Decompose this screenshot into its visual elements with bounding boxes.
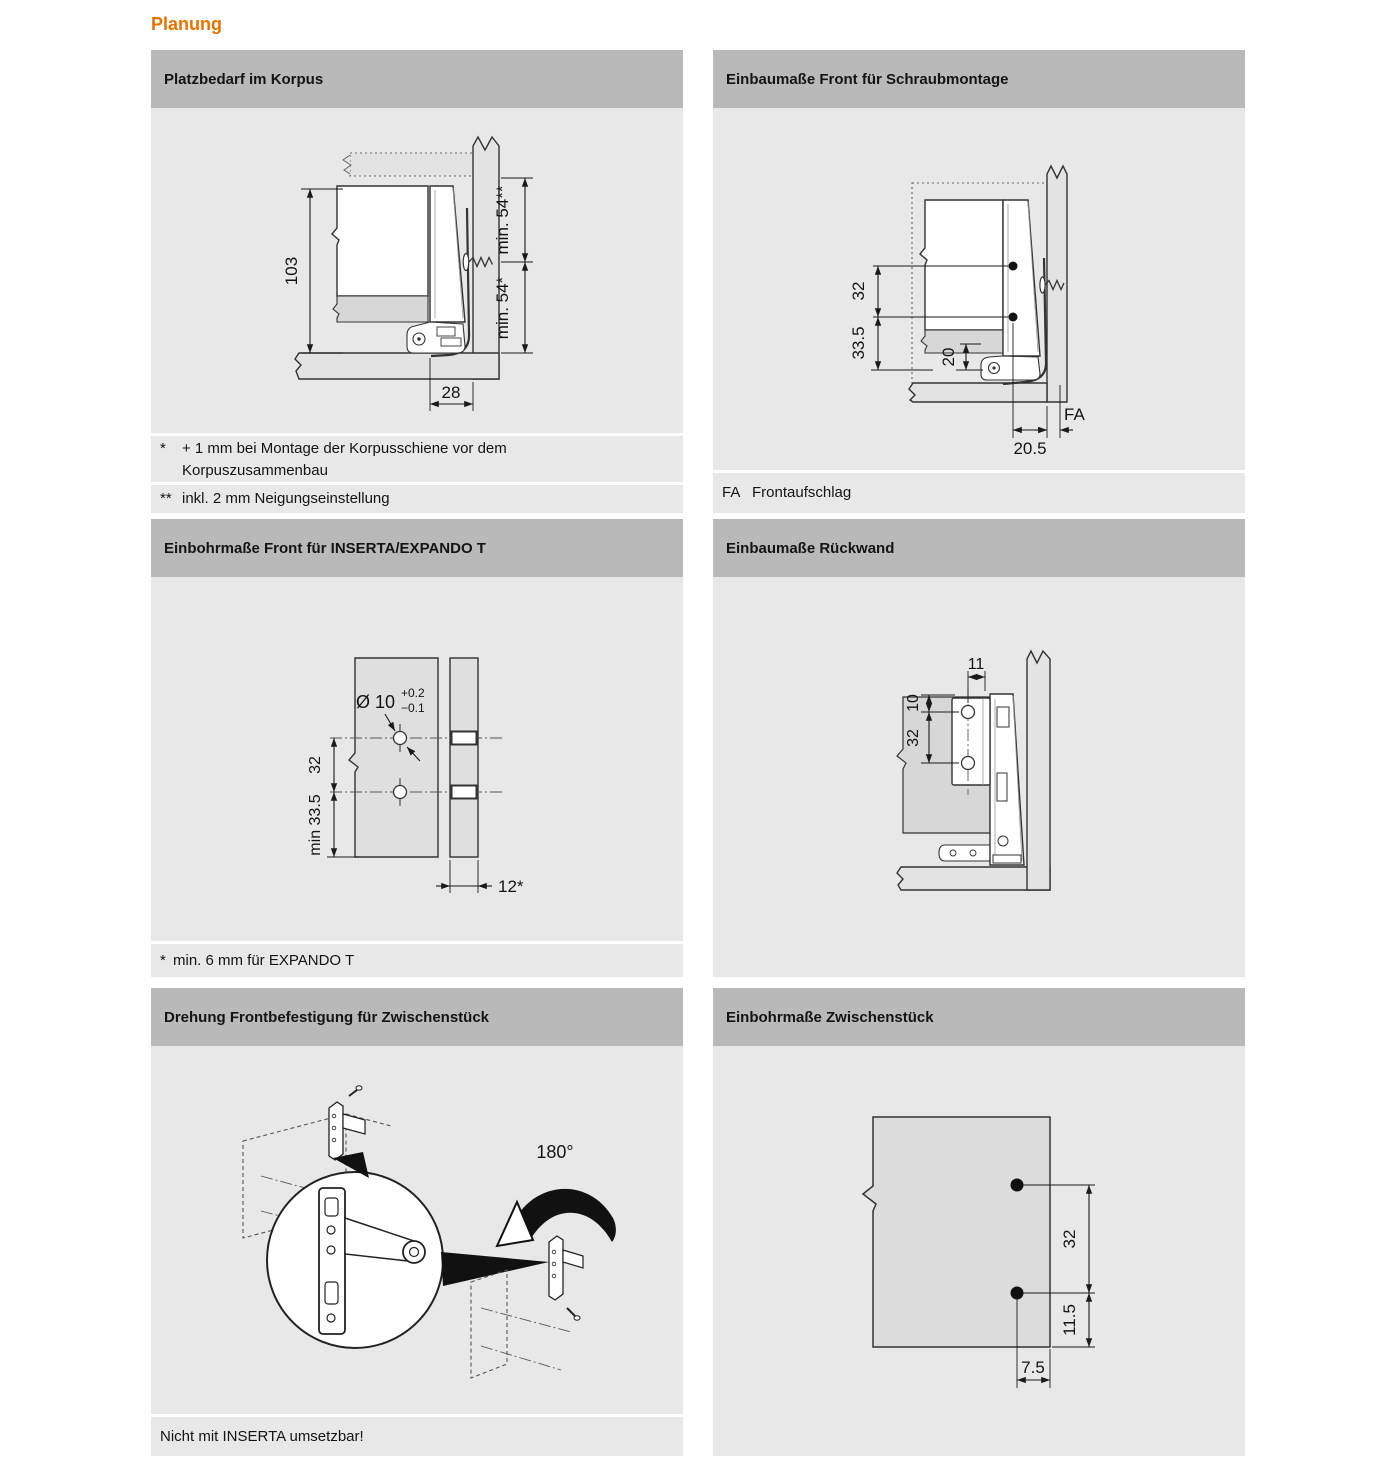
platzbedarf-drawing: 103 28 min. 54** min. 54* xyxy=(151,108,683,433)
panel-platzbedarf: Platzbedarf im Korpus xyxy=(151,50,683,513)
panel-inserta: Einbohrmaße Front für INSERTA/EXPANDO T xyxy=(151,519,683,977)
dim-11-label: 11 xyxy=(968,656,985,673)
panel-rueckwand-header: Einbaumaße Rückwand xyxy=(713,519,1245,577)
rueckwand-drawing: 10 32 11 xyxy=(713,577,1245,977)
bracket-hole xyxy=(962,757,975,770)
panel-zwischenstueck-body: 32 11.5 7.5 xyxy=(713,1046,1245,1456)
footnote-text: Nicht mit INSERTA umsetzbar! xyxy=(160,1426,364,1448)
dim-205-label: 20.5 xyxy=(1013,439,1046,458)
dim-12-label: 12* xyxy=(498,877,524,896)
planning-page: Planung Platzbedarf im Korpus xyxy=(0,0,1400,1461)
bracket-hole xyxy=(962,706,975,719)
dim-depth-label: 28 xyxy=(442,383,461,402)
dim-75-label: 7.5 xyxy=(1021,1358,1045,1377)
zwischenstueck-drawing: 32 11.5 7.5 xyxy=(713,1046,1245,1456)
drill-point xyxy=(1011,1179,1024,1192)
panel-rueckwand: Einbaumaße Rückwand xyxy=(713,519,1245,977)
panel-schraubmontage: Einbaumaße Front für Schraubmontage xyxy=(713,50,1245,513)
dim-32-label: 32 xyxy=(1060,1230,1079,1249)
footnote-row: * + 1 mm bei Montage der Korpusschiene v… xyxy=(151,436,683,482)
dim-32-label: 32 xyxy=(905,729,922,747)
drawer-back-panel xyxy=(332,186,428,296)
footnote-marker: * xyxy=(160,950,173,972)
panel-rueckwand-body: 10 32 11 xyxy=(713,577,1245,977)
footnote-marker: FA xyxy=(722,482,752,504)
cabinet-wall xyxy=(1027,651,1050,890)
runner-foot xyxy=(939,845,990,861)
footnote-row: ** inkl. 2 mm Neigungseinstellung xyxy=(151,485,683,513)
drehung-drawing: 180° xyxy=(151,1046,683,1414)
panel-platzbedarf-body: 103 28 min. 54** min. 54* xyxy=(151,108,683,433)
footnote-marker: * xyxy=(160,438,182,460)
footnote-text: + 1 mm bei Montage der Korpusschiene vor… xyxy=(182,438,572,482)
right-panel-outline xyxy=(471,1270,507,1378)
inserta-drawing: Ø 10 +0.2 −0.1 32 min 33.5 12* xyxy=(151,577,683,941)
footnote-row: Nicht mit INSERTA umsetzbar! xyxy=(151,1417,683,1456)
footnote-text: inkl. 2 mm Neigungseinstellung xyxy=(182,488,390,510)
bore-side-mark xyxy=(452,786,477,799)
panel-zwischenstueck-header: Einbohrmaße Zwischenstück xyxy=(713,988,1245,1046)
cabinet-bottom xyxy=(295,353,499,379)
panel-schraubmontage-header: Einbaumaße Front für Schraubmontage xyxy=(713,50,1245,108)
panel-drehung: Drehung Frontbefestigung für Zwischenstü… xyxy=(151,988,683,1456)
dim-min-bottom-label: min. 54* xyxy=(493,276,512,339)
rotation-angle-label: 180° xyxy=(536,1142,573,1162)
dim-10-label: 10 xyxy=(905,694,922,712)
front-side-view xyxy=(450,658,478,857)
panel-inserta-body: Ø 10 +0.2 −0.1 32 min 33.5 12* xyxy=(151,577,683,941)
drawer-bottom-board xyxy=(921,330,1003,353)
dim-min335-label: min 33.5 xyxy=(307,794,324,855)
dim-32-label: 32 xyxy=(849,282,868,301)
dim-335-label: 33.5 xyxy=(849,326,868,359)
drawer-side-profile xyxy=(1003,200,1040,356)
dim-diameter-label: Ø 10 xyxy=(356,692,395,712)
footnote-row: FA Frontaufschlag xyxy=(713,473,1245,513)
cabinet-bottom xyxy=(909,383,1047,402)
drawer-panel xyxy=(920,200,1003,330)
schraubmontage-drawing: 32 33.5 20 20.5 FA xyxy=(713,108,1245,470)
zwischenstueck-board xyxy=(863,1117,1050,1347)
drill-point xyxy=(1011,1287,1024,1300)
front-bracket-icon xyxy=(329,1086,365,1160)
tolerance-minus-label: −0.1 xyxy=(401,701,425,715)
front-bracket-icon xyxy=(549,1236,583,1320)
bore-side-mark xyxy=(452,732,477,745)
cabinet-side-wall xyxy=(473,137,499,379)
panel-drehung-header: Drehung Frontbefestigung für Zwischenstü… xyxy=(151,988,683,1046)
page-title: Planung xyxy=(151,14,222,35)
footnote-text: min. 6 mm für EXPANDO T xyxy=(173,950,354,972)
panel-inserta-header: Einbohrmaße Front für INSERTA/EXPANDO T xyxy=(151,519,683,577)
footnote-marker: ** xyxy=(160,488,182,510)
panel-drehung-body: 180° xyxy=(151,1046,683,1414)
drawer-bottom-board xyxy=(333,296,428,322)
callout-wedge xyxy=(441,1252,549,1286)
dim-fa-label: FA xyxy=(1064,405,1085,424)
dim-115-label: 11.5 xyxy=(1060,1304,1079,1336)
bore-hole xyxy=(394,732,407,745)
dim-20-label: 20 xyxy=(939,348,958,367)
footnote-row: * min. 6 mm für EXPANDO T xyxy=(151,944,683,977)
panel-schraubmontage-body: 32 33.5 20 20.5 FA xyxy=(713,108,1245,470)
dim-32-label: 32 xyxy=(307,756,324,774)
screw-position-dot xyxy=(1009,262,1018,271)
panel-zwischenstueck: Einbohrmaße Zwischenstück xyxy=(713,988,1245,1456)
dim-height-label: 103 xyxy=(282,257,301,285)
footnote-text: Frontaufschlag xyxy=(752,482,851,504)
dim-min-top-label: min. 54** xyxy=(493,185,512,254)
screw-position-dot xyxy=(1009,313,1018,322)
panel-platzbedarf-header: Platzbedarf im Korpus xyxy=(151,50,683,108)
bore-hole xyxy=(394,786,407,799)
tolerance-plus-label: +0.2 xyxy=(401,686,425,700)
